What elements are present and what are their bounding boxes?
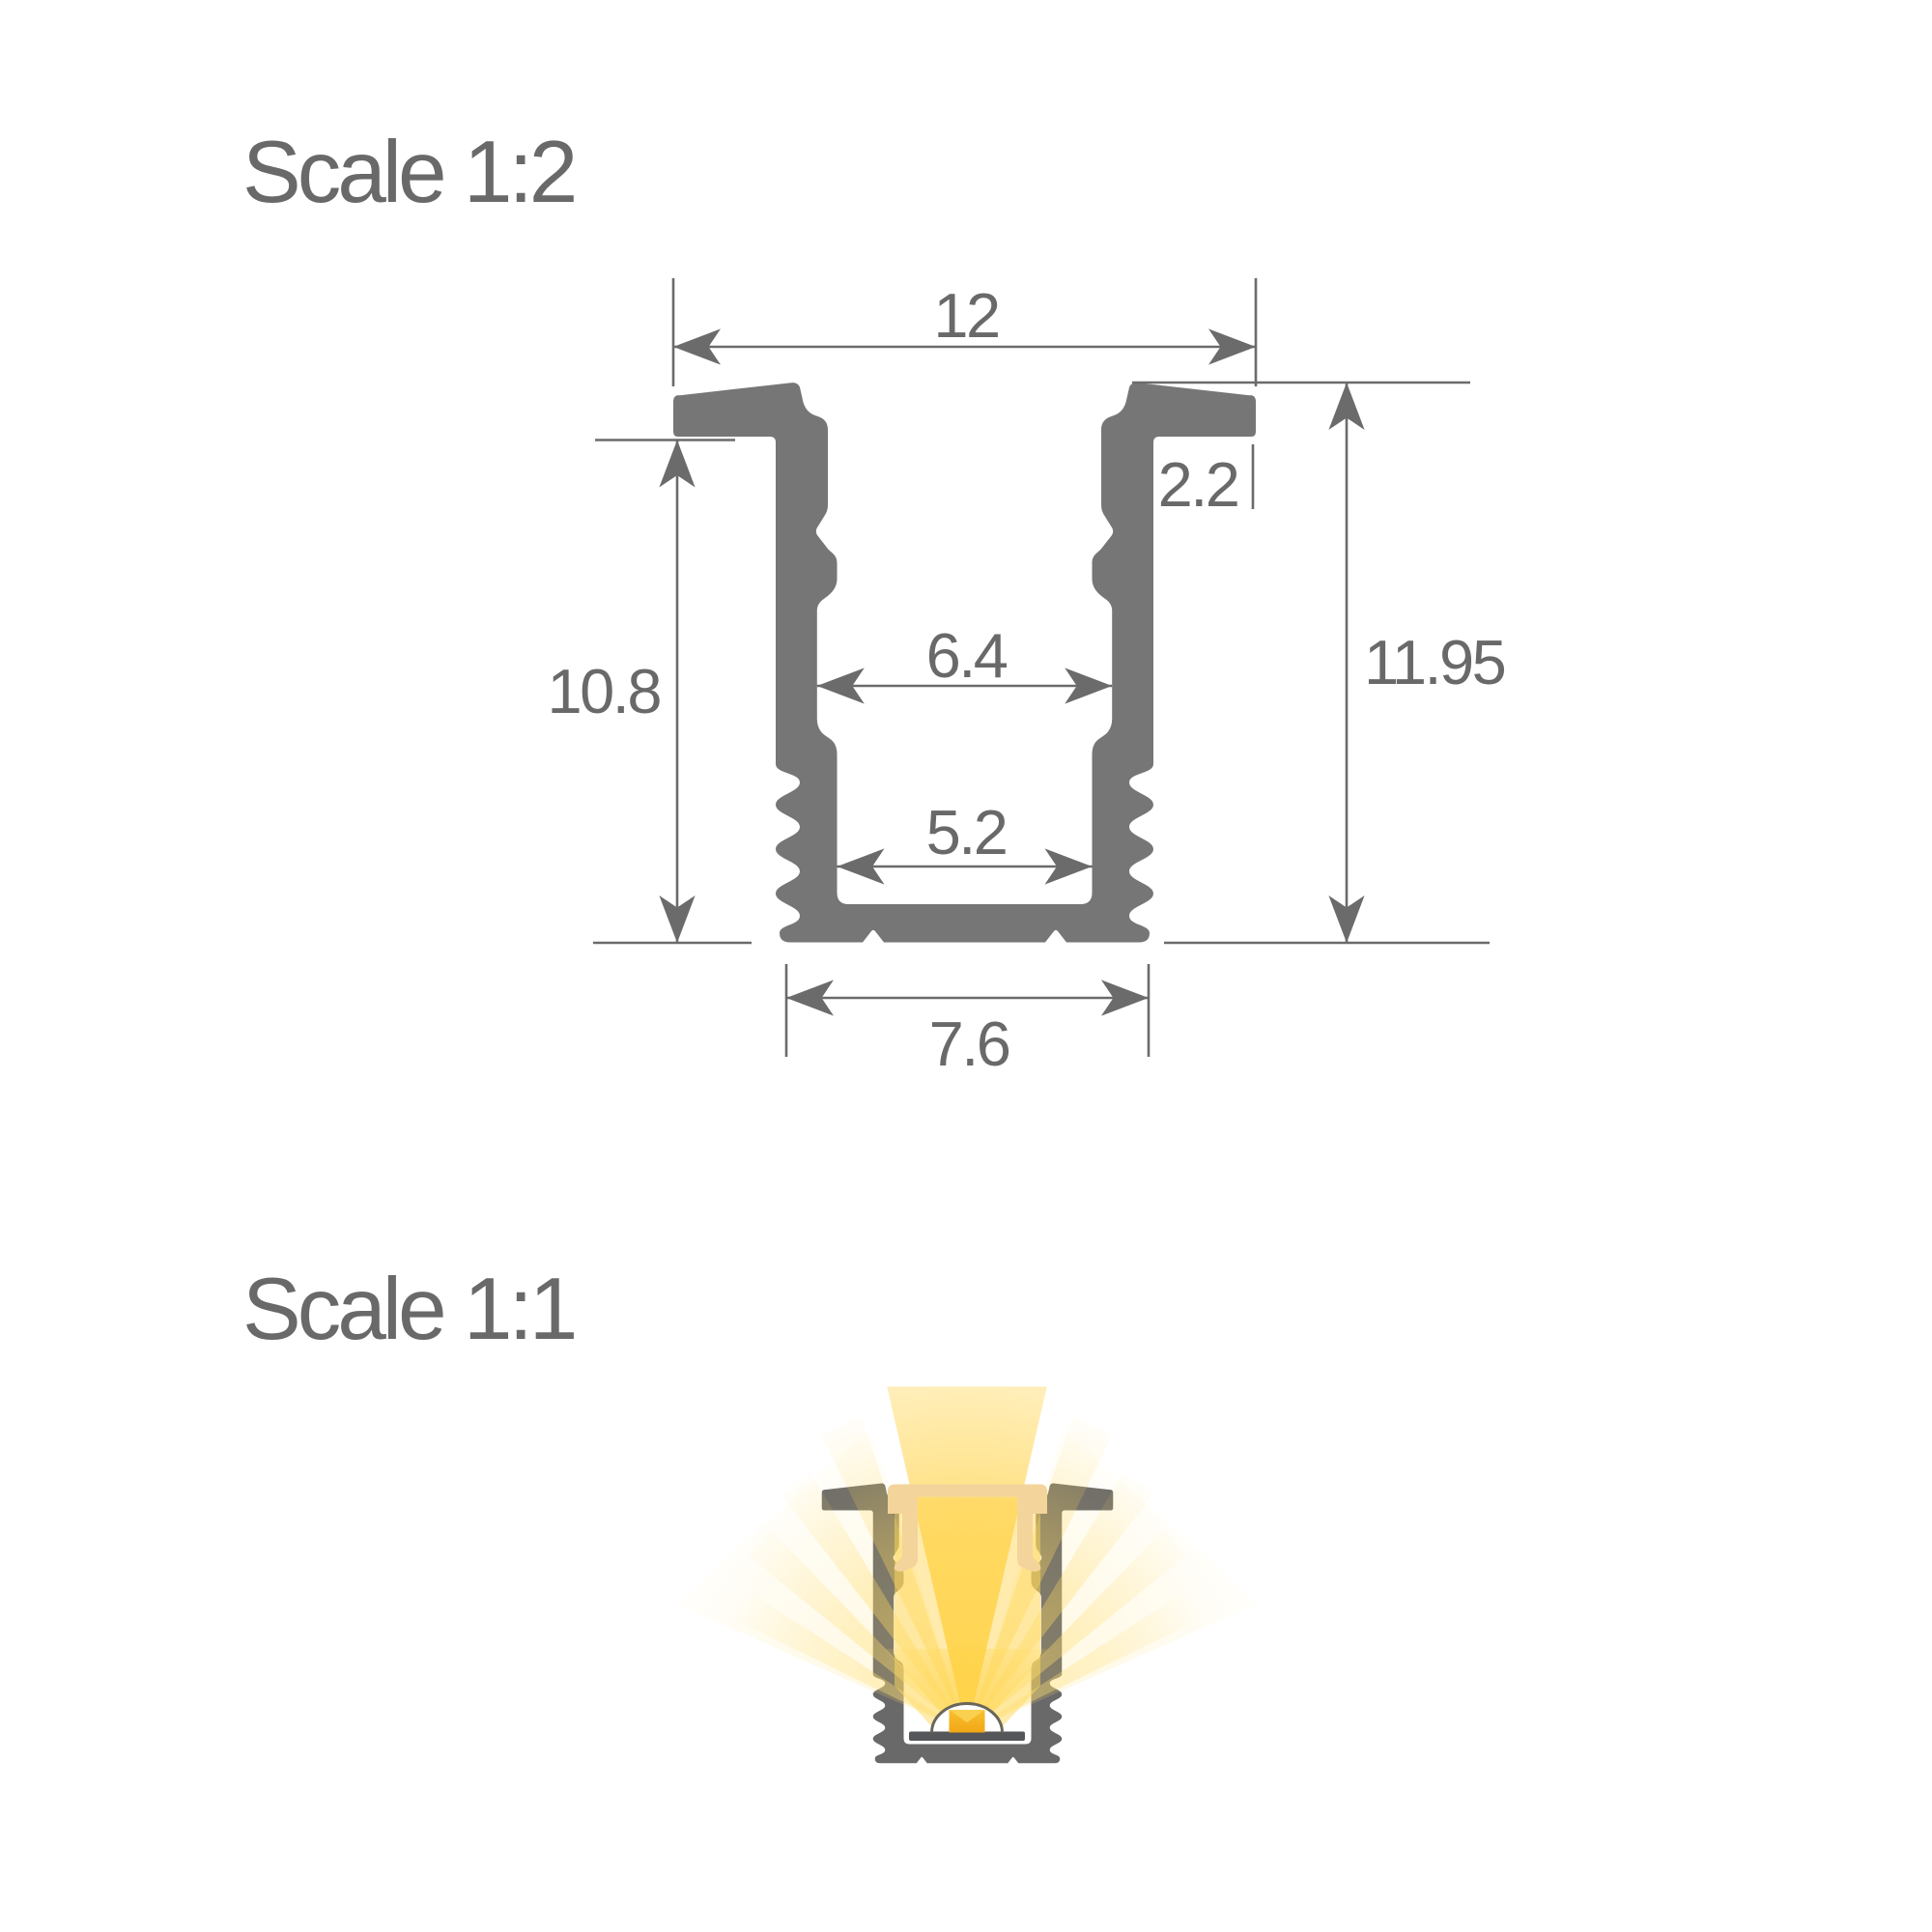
- svg-text:5.2: 5.2: [926, 797, 1007, 867]
- svg-text:2.2: 2.2: [1158, 449, 1238, 520]
- svg-text:12: 12: [933, 280, 998, 351]
- svg-text:10.8: 10.8: [547, 656, 660, 726]
- svg-text:6.4: 6.4: [926, 620, 1008, 691]
- svg-text:Scale 1:2: Scale 1:2: [242, 124, 575, 221]
- svg-text:7.6: 7.6: [929, 1009, 1009, 1079]
- svg-text:Scale 1:1: Scale 1:1: [242, 1261, 575, 1358]
- svg-text:11.95: 11.95: [1364, 627, 1505, 697]
